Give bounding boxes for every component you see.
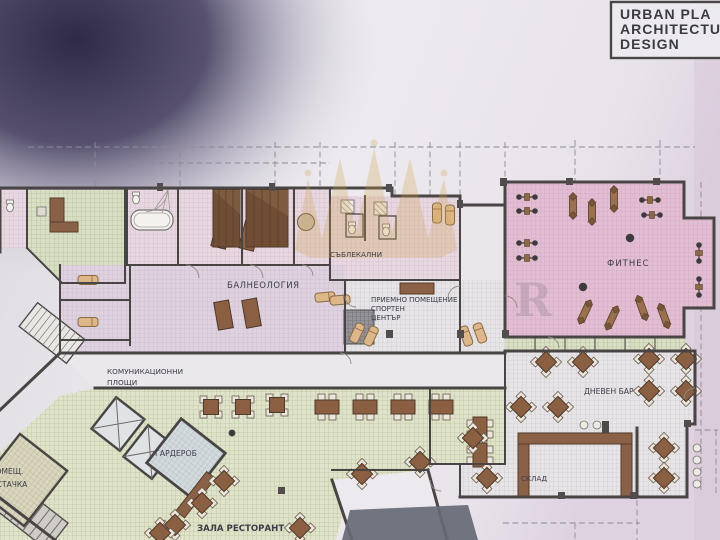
title-block-line-1: URBAN PLA	[620, 6, 711, 22]
room-label-storage: СКЛАД	[521, 474, 547, 483]
floor-entry	[460, 205, 505, 280]
room-label-changing-rooms: СЪБЛЕКАЛНИ	[330, 250, 382, 259]
floor-plan-photo: R БАЛНЕОЛОГИЯ СЪБЛЕКАЛНИ ПРИЕМНО ПОМЕЩЕН…	[0, 0, 720, 540]
room-label-reception-1: ПРИЕМНО ПОМЕЩЕНИЕ	[371, 296, 457, 304]
title-block-line-2: ARCHITECTU	[620, 21, 720, 37]
floor-wc-small	[0, 190, 27, 248]
title-block-line-3: DESIGN	[620, 36, 680, 52]
room-label-wardrobe: ГАРДЕРОБ	[155, 449, 197, 458]
room-label-reception-2: СПОРТЕН	[371, 305, 405, 313]
room-label-communication-2: ПЛОЩИ	[107, 378, 137, 387]
column	[626, 234, 634, 242]
bar-stool	[693, 444, 701, 452]
floor-plan-drawing: R БАЛНЕОЛОГИЯ СЪБЛЕКАЛНИ ПРИЕМНО ПОМЕЩЕН…	[0, 0, 720, 540]
bar-stool	[693, 456, 701, 464]
room-label-reception-3: ЦЕНТЪР	[371, 314, 400, 322]
title-block: URBAN PLA ARCHITECTU DESIGN	[611, 2, 720, 58]
room-label-fitness: ФИТНЕС	[607, 259, 650, 269]
watermark-letter: R	[514, 273, 553, 327]
room-label-cleaner-2: ЧИСТАЧКА	[0, 480, 28, 489]
room-label-balneology: БАЛНЕОЛОГИЯ	[227, 281, 300, 291]
photo-dark-object	[342, 505, 478, 540]
bar-stool	[693, 468, 701, 476]
room-label-communication-1: КОМУНИКАЦИОННИ	[107, 367, 183, 376]
room-label-restaurant: ЗАЛА РЕСТОРАНТ	[197, 524, 284, 534]
room-label-day-bar: ДНЕВЕН БАР	[584, 387, 634, 396]
sink-icon	[37, 207, 46, 216]
column	[579, 283, 587, 291]
reception-desk	[400, 283, 434, 294]
room-label-cleaner-1: ПОМЕЩ.	[0, 467, 23, 476]
bar-stool	[693, 480, 701, 488]
